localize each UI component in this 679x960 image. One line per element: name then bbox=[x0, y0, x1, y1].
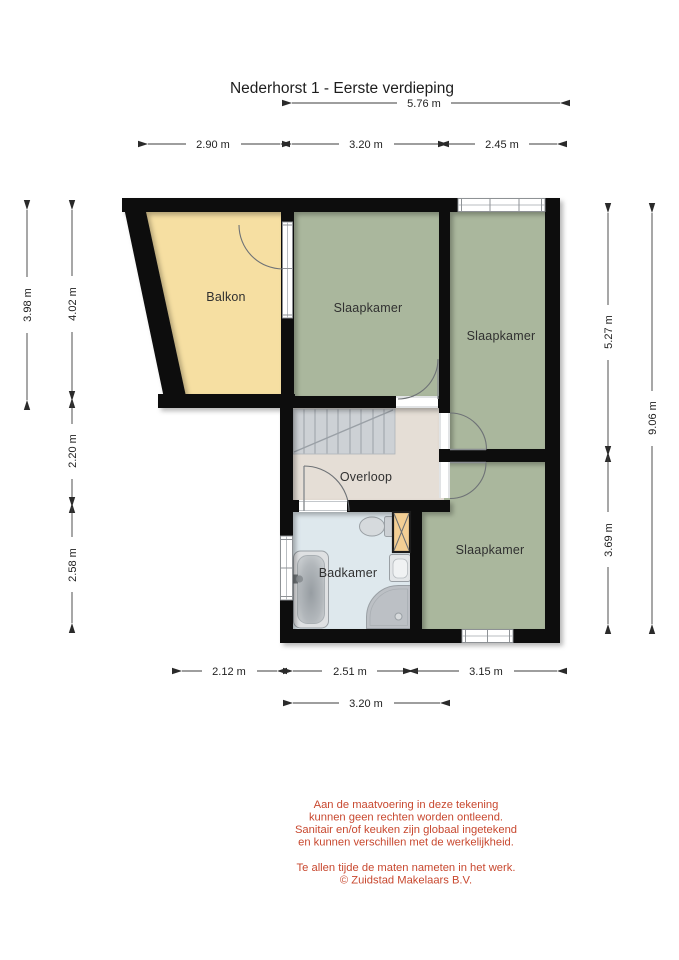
dim-label: 9.06 m bbox=[647, 401, 659, 435]
window-bottom bbox=[462, 630, 513, 643]
toilet bbox=[360, 517, 396, 537]
dim-label: 3.20 m bbox=[349, 698, 383, 710]
dim-label: 4.02 m bbox=[67, 287, 79, 321]
dim-bottom-inner: 3.20 m bbox=[293, 698, 440, 710]
dim-label: 2.58 m bbox=[67, 548, 79, 582]
door-opening-slaapkamer-bottom bbox=[439, 462, 450, 498]
dim-top-mid: 3.20 m bbox=[292, 139, 439, 151]
label-badkamer: Badkamer bbox=[319, 566, 378, 580]
dim-top-balkon: 2.90 m bbox=[148, 139, 280, 151]
wall-left-lower bbox=[280, 394, 293, 643]
dim-right-upper: 5.27 m bbox=[603, 213, 615, 452]
dim-label: 3.20 m bbox=[349, 139, 383, 151]
disclaimer-line: Aan de maatvoering in deze tekening bbox=[314, 799, 499, 811]
dim-label: 2.90 m bbox=[196, 139, 230, 151]
label-overloop: Overloop bbox=[340, 470, 392, 484]
copyright-line: © Zuidstad Makelaars B.V. bbox=[340, 875, 472, 887]
dim-bottom-right: 3.15 m bbox=[413, 666, 557, 678]
dimensions-left: 3.98 m 4.02 m 2.20 m 2.58 m bbox=[22, 210, 79, 623]
label-slaapkamer-right: Slaapkamer bbox=[467, 329, 536, 343]
label-slaapkamer-mid: Slaapkamer bbox=[334, 301, 403, 315]
dimensions-bottom: 2.12 m 2.51 m 3.15 m 3.20 m bbox=[182, 666, 557, 710]
bathtub-faucet-knob bbox=[296, 575, 303, 582]
window-top bbox=[458, 199, 545, 212]
sink bbox=[390, 555, 411, 582]
disclaimer-block: Aan de maatvoering in deze tekening kunn… bbox=[295, 799, 517, 887]
wall-bottom bbox=[280, 629, 560, 643]
dim-label: 2.12 m bbox=[212, 666, 246, 678]
wall-right-bedrooms-horizontal bbox=[439, 449, 560, 462]
wall-badkamer-right bbox=[410, 512, 422, 629]
wall-right bbox=[545, 198, 560, 643]
dim-top-right: 2.45 m bbox=[448, 139, 557, 151]
door-opening-slaapkamer-right bbox=[439, 413, 450, 449]
label-slaapkamer-bottom: Slaapkamer bbox=[456, 543, 525, 557]
dim-right-lower: 3.69 m bbox=[603, 456, 615, 624]
disclaimer-line: kunnen geen rechten worden ontleend. bbox=[309, 812, 503, 824]
dim-bottom-middle: 2.51 m bbox=[293, 666, 408, 678]
page-title: Nederhorst 1 - Eerste verdieping bbox=[230, 80, 454, 97]
balcony-door-glass bbox=[283, 222, 293, 318]
dim-label: 3.69 m bbox=[603, 523, 615, 557]
duct-shaft bbox=[393, 512, 410, 552]
shower-drain bbox=[395, 613, 402, 620]
dim-left-outer: 3.98 m bbox=[22, 210, 34, 400]
dim-label: 5.27 m bbox=[603, 315, 615, 349]
dim-left-lower: 2.58 m bbox=[67, 507, 79, 623]
dim-top-total: 5.76 m bbox=[292, 98, 560, 110]
dim-right-outer: 9.06 m bbox=[647, 213, 659, 624]
dimensions-right: 5.27 m 3.69 m 9.06 m bbox=[603, 213, 659, 624]
disclaimer-line: en kunnen verschillen met de werkelijkhe… bbox=[298, 837, 514, 849]
label-balkon: Balkon bbox=[206, 290, 245, 304]
dimensions-top: 5.76 m 2.90 m 3.20 m 2.45 m bbox=[148, 98, 560, 151]
dim-label: 3.98 m bbox=[22, 288, 34, 322]
dim-label: 2.20 m bbox=[67, 434, 79, 468]
dim-left-upper: 4.02 m bbox=[67, 210, 79, 398]
dim-label: 2.51 m bbox=[333, 666, 367, 678]
dim-left-middle: 2.20 m bbox=[67, 401, 79, 503]
stairs bbox=[293, 409, 395, 454]
dim-label: 2.45 m bbox=[485, 139, 519, 151]
note-line: Te allen tijde de maten nameten in het w… bbox=[297, 862, 516, 874]
floorplan-svg: Nederhorst 1 - Eerste verdieping 5.76 m … bbox=[0, 0, 679, 960]
disclaimer-line: Sanitair en/of keuken zijn globaal inget… bbox=[295, 824, 517, 836]
room-slaapkamer-right bbox=[444, 202, 550, 454]
wall-balkon-bottom bbox=[158, 394, 295, 408]
door-opening-slaapkamer-mid bbox=[396, 396, 438, 408]
floorplan-page: Nederhorst 1 - Eerste verdieping 5.76 m … bbox=[0, 0, 679, 960]
door-opening-badkamer bbox=[299, 500, 347, 512]
bathtub bbox=[293, 551, 329, 628]
dim-label: 5.76 m bbox=[407, 98, 441, 110]
window-left bbox=[281, 536, 293, 600]
dim-bottom-left: 2.12 m bbox=[182, 666, 277, 678]
dim-label: 3.15 m bbox=[469, 666, 503, 678]
